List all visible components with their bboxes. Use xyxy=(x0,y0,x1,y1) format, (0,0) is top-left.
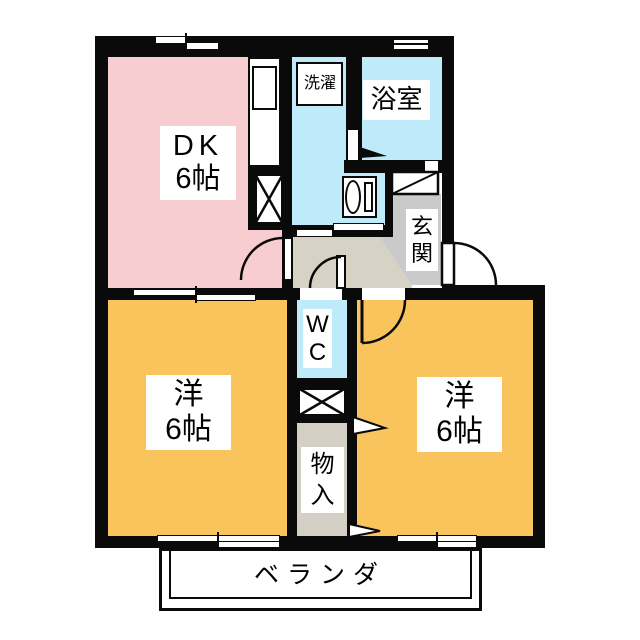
entrance-door-leaf xyxy=(442,243,454,285)
washbasin-bowl xyxy=(345,180,361,214)
washroom-slider-pane1 xyxy=(296,229,333,237)
bathroom-label-text: 浴室 xyxy=(370,85,422,115)
dk-westroom-slider-pane2 xyxy=(195,294,256,301)
wc-door-opening xyxy=(300,288,342,300)
wall-right-upper xyxy=(442,36,454,243)
wc-label: W C xyxy=(303,309,332,368)
bathroom-label: 浴室 xyxy=(363,80,430,120)
closet-label: 物 入 xyxy=(301,447,344,513)
wall-east-room-top xyxy=(442,285,545,300)
west-room-label-line2: 6帖 xyxy=(165,413,212,448)
dk-westroom-slider-tick xyxy=(195,286,197,303)
dk-window-north-tick xyxy=(185,33,187,52)
dk-door-opening xyxy=(283,237,293,281)
dk-room-label: DK 6帖 xyxy=(160,126,236,200)
east-room-door-opening xyxy=(362,288,405,300)
west-room-terrace-window-pane2 xyxy=(218,541,280,548)
genkan-label-char1: 玄 xyxy=(411,213,433,241)
wall-right-lower xyxy=(533,288,545,548)
closet-label-char2: 入 xyxy=(311,480,335,511)
kitchen-sink xyxy=(252,66,277,110)
dk-westroom-slider-pane1 xyxy=(133,289,196,296)
east-room-label-line2: 6帖 xyxy=(436,415,483,450)
dk-window-north-pane2 xyxy=(186,42,219,50)
east-room-label-line1: 洋 xyxy=(445,380,475,415)
hallway-floor xyxy=(293,237,412,288)
laundry-label-text: 洗濯 xyxy=(304,75,336,93)
dk-window-north-pane1 xyxy=(155,36,188,44)
genkan-label: 玄 関 xyxy=(406,209,438,271)
shoe-cabinet xyxy=(392,172,438,194)
closet-label-char1: 物 xyxy=(311,449,335,480)
east-room-label: 洋 6帖 xyxy=(417,377,502,452)
washbasin-cabinet xyxy=(364,182,373,212)
pipe-shaft-box-kitchen xyxy=(254,173,284,225)
entrance-door-arc xyxy=(454,243,496,285)
east-room-terrace-window-tick xyxy=(436,532,438,551)
genkan-label-char2: 関 xyxy=(411,240,433,268)
washroom-slider-pane2 xyxy=(333,223,384,231)
east-room-terrace-window-pane2 xyxy=(437,541,477,548)
bathroom-window-mullion xyxy=(392,43,430,45)
west-room-terrace-window-tick xyxy=(217,532,219,551)
wc-label-char2: C xyxy=(309,339,326,367)
pipe-shaft-box-core xyxy=(297,387,347,417)
wc-label-char1: W xyxy=(306,311,329,339)
dk-room-label-line2: 6帖 xyxy=(175,163,220,196)
dk-room-label-line1: DK xyxy=(173,130,223,163)
veranda-label-text: ベランダ xyxy=(254,561,386,589)
floor-plan: DK 6帖 浴室 洗濯 玄 関 W C 物 入 洋 6帖 洋 6帖 ベランダ xyxy=(0,0,640,640)
bathroom-vent-gap xyxy=(425,161,438,172)
bathroom-door-gap xyxy=(346,128,360,162)
shoe-cabinet-diagonal xyxy=(392,172,438,194)
west-room-label-line1: 洋 xyxy=(174,378,204,413)
west-room-label: 洋 6帖 xyxy=(146,375,231,450)
veranda-label: ベランダ xyxy=(210,555,430,585)
wc-door-leaf xyxy=(336,255,346,289)
laundry-label: 洗濯 xyxy=(300,72,340,96)
